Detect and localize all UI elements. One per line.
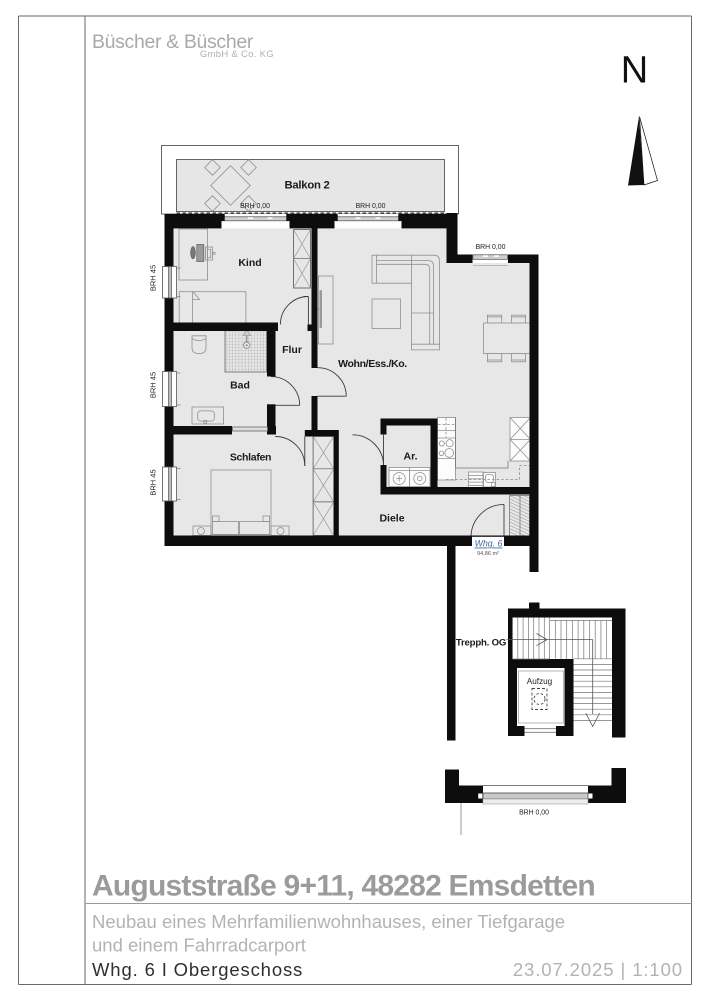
svg-text:Bad: Bad (230, 380, 250, 392)
svg-text:Trepph. OG: Trepph. OG (456, 638, 506, 649)
svg-text:Whg. 6: Whg. 6 (475, 539, 503, 549)
svg-text:BRH 0,00: BRH 0,00 (519, 810, 549, 817)
svg-text:BRH 45: BRH 45 (149, 372, 158, 398)
svg-text:Balkon 2: Balkon 2 (284, 180, 329, 192)
svg-text:BRH 0,00: BRH 0,00 (476, 244, 506, 251)
svg-text:Schlafen: Schlafen (230, 452, 271, 464)
svg-text:GmbH & Co. KG: GmbH & Co. KG (200, 49, 274, 60)
svg-text:23.07.2025 | 1:100: 23.07.2025 | 1:100 (513, 959, 683, 980)
svg-text:Kind: Kind (238, 257, 261, 269)
svg-text:BRH 45: BRH 45 (149, 265, 158, 291)
svg-text:Neubau eines Mehrfamilienwohnh: Neubau eines Mehrfamilienwohnhauses, ein… (92, 911, 565, 932)
svg-text:und einem Fahrradcarport: und einem Fahrradcarport (92, 935, 306, 956)
svg-text:Wohn/Ess./Ko.: Wohn/Ess./Ko. (338, 358, 407, 370)
svg-text:BRH 0,00: BRH 0,00 (240, 203, 270, 210)
svg-text:Diele: Diele (379, 513, 404, 525)
svg-text:Ar.: Ar. (403, 451, 417, 463)
svg-text:Whg. 6 I Obergeschoss: Whg. 6 I Obergeschoss (92, 959, 303, 980)
svg-text:94,86 m²: 94,86 m² (477, 551, 499, 557)
svg-text:BRH 45: BRH 45 (149, 469, 158, 495)
svg-text:Aufzug: Aufzug (527, 677, 553, 686)
svg-text:N: N (621, 50, 648, 92)
svg-text:BRH 0,00: BRH 0,00 (356, 203, 386, 210)
svg-text:Flur: Flur (282, 344, 302, 356)
svg-text:Auguststraße 9+11, 48282 Emsde: Auguststraße 9+11, 48282 Emsdetten (92, 870, 595, 903)
